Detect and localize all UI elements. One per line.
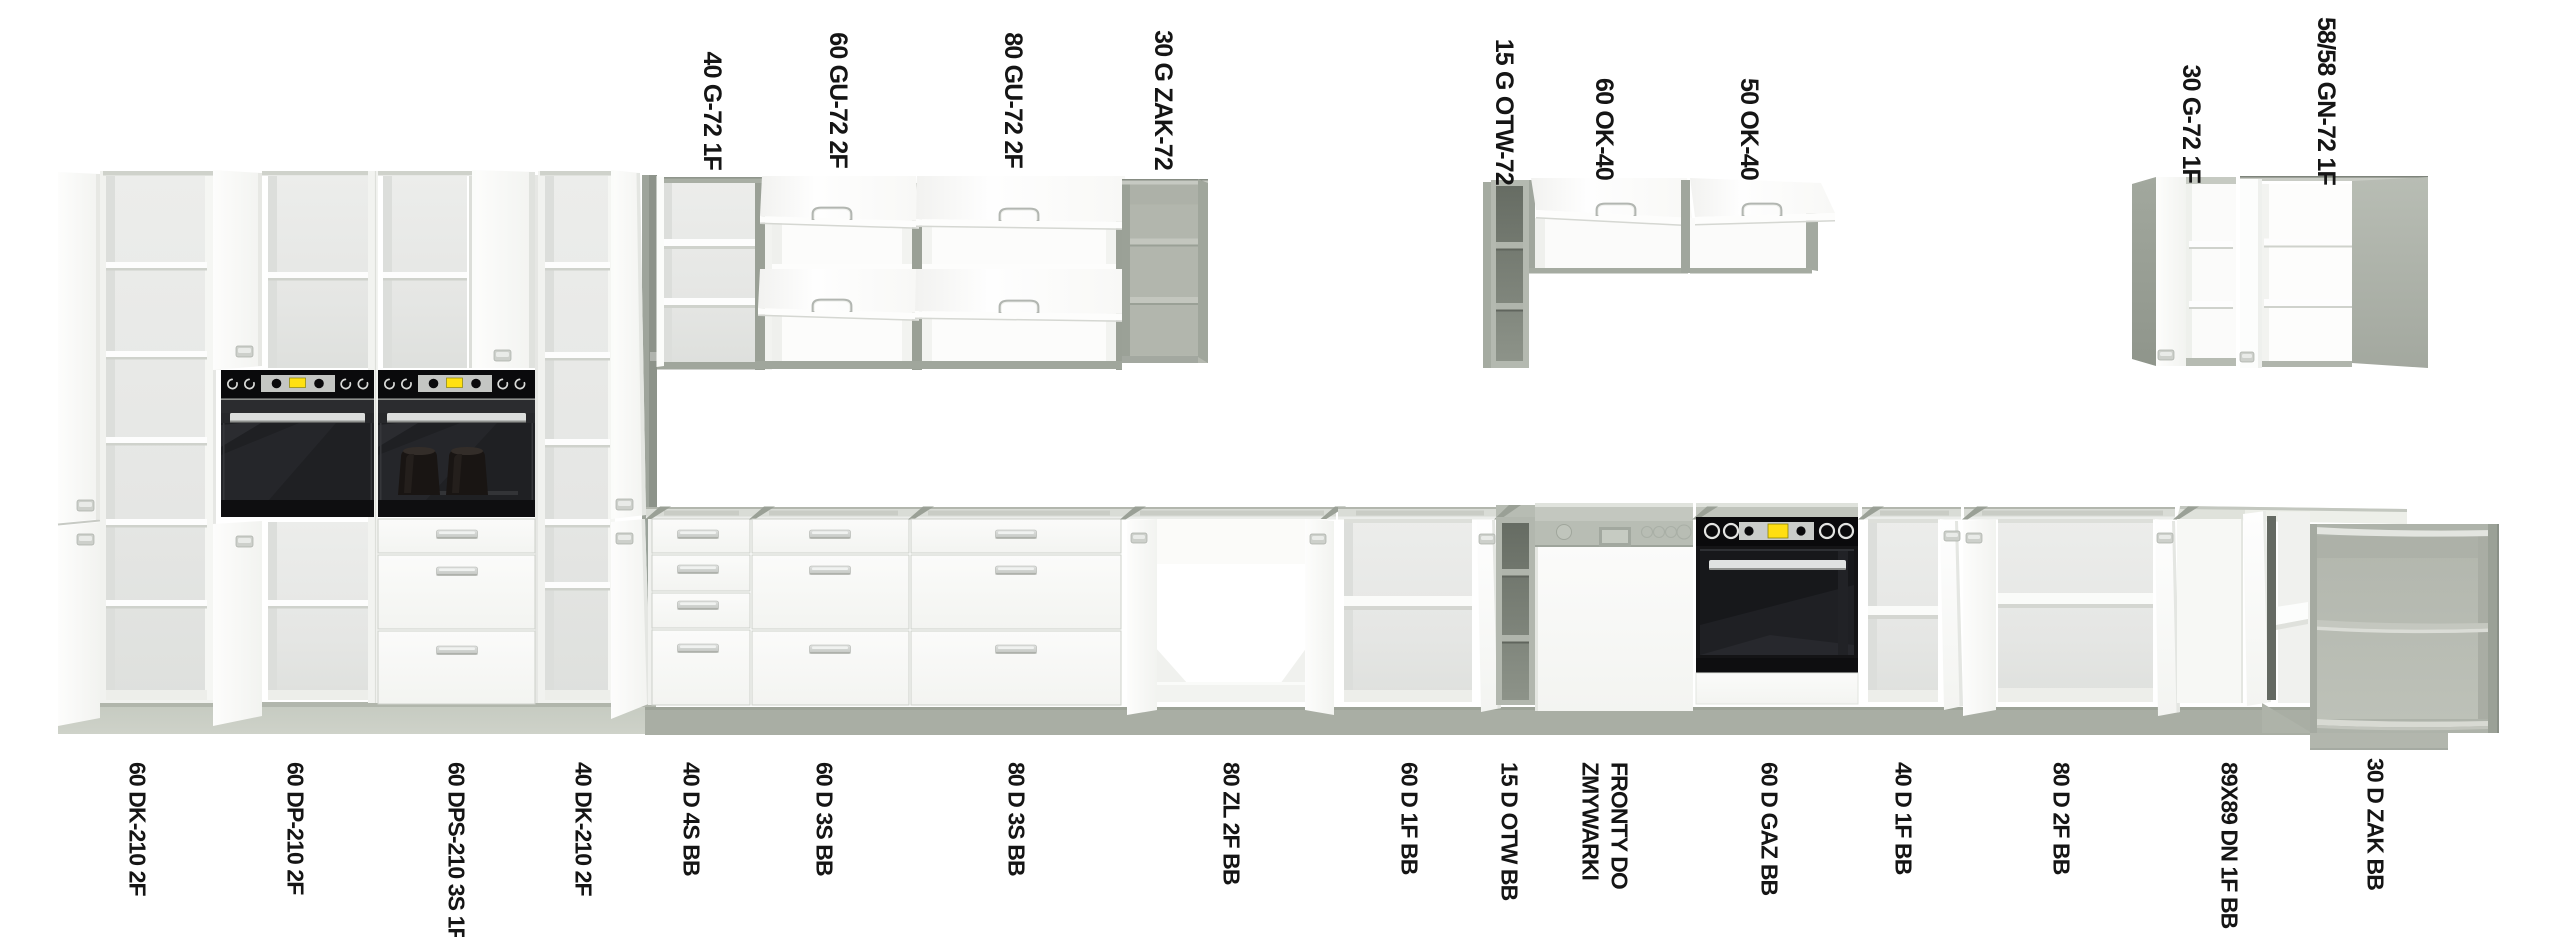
svg-text:40 D 4S BB: 40 D 4S BB [679,762,705,876]
svg-text:60 DPS-210 3S 1F: 60 DPS-210 3S 1F [444,762,470,937]
svg-text:30 G ZAK-72: 30 G ZAK-72 [1149,30,1177,170]
svg-text:60 GU-72 2F: 60 GU-72 2F [824,32,852,168]
svg-text:40 DK-210 2F: 40 DK-210 2F [571,762,597,897]
svg-text:30 G-72 1F: 30 G-72 1F [2177,65,2205,184]
svg-text:80 D 3S BB: 80 D 3S BB [1004,762,1030,876]
svg-text:FRONTY DO: FRONTY DO [1607,762,1633,889]
svg-text:80 ZL 2F BB: 80 ZL 2F BB [1219,762,1245,885]
svg-text:60 D 3S BB: 60 D 3S BB [812,762,838,876]
svg-text:60 D 1F BB: 60 D 1F BB [1397,762,1423,875]
svg-text:60 DP-210 2F: 60 DP-210 2F [283,762,309,895]
svg-text:15 D OTW BB: 15 D OTW BB [1497,762,1523,901]
svg-text:89X89 DN 1F BB: 89X89 DN 1F BB [2217,762,2243,929]
svg-text:80 D 2F BB: 80 D 2F BB [2049,762,2075,875]
svg-text:60 OK-40: 60 OK-40 [1590,78,1618,180]
svg-text:40 G-72 1F: 40 G-72 1F [698,52,726,171]
svg-text:58/58 GN-72 1F: 58/58 GN-72 1F [2312,17,2340,186]
svg-text:ZMYWARKI: ZMYWARKI [1578,762,1604,880]
svg-text:50 OK-40: 50 OK-40 [1735,78,1763,180]
svg-text:30 D ZAK BB: 30 D ZAK BB [2363,758,2389,890]
svg-text:80 GU-72 2F: 80 GU-72 2F [999,32,1027,168]
svg-text:15 G OTW-72: 15 G OTW-72 [1490,39,1518,185]
svg-text:60 DK-210 2F: 60 DK-210 2F [125,762,151,897]
svg-text:60 D GAZ BB: 60 D GAZ BB [1757,762,1783,896]
svg-text:40 D 1F BB: 40 D 1F BB [1891,762,1917,875]
